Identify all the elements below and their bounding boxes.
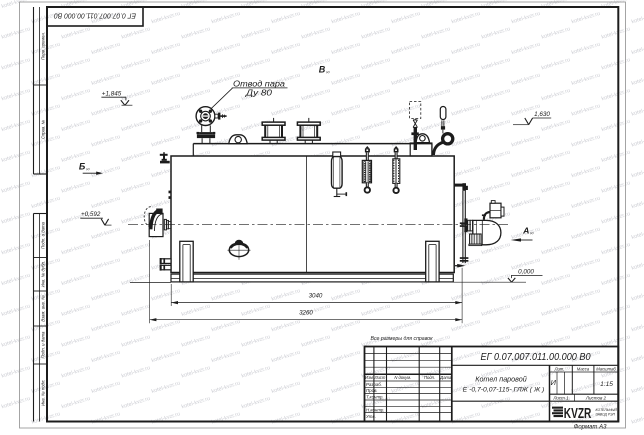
- svg-text:kotel-kvzr.ru: kotel-kvzr.ru: [541, 26, 571, 40]
- svg-text:kotel-kvzr.ru: kotel-kvzr.ru: [151, 411, 181, 425]
- svg-text:kotel-kvzr.ru: kotel-kvzr.ru: [421, 119, 451, 133]
- svg-text:(2): (2): [530, 231, 534, 235]
- svg-text:kotel-kvzr.ru: kotel-kvzr.ru: [121, 365, 151, 379]
- svg-text:kotel-kvzr.ru: kotel-kvzr.ru: [391, 11, 421, 25]
- svg-text:Лит.: Лит.: [554, 367, 565, 372]
- svg-text:kotel-kvzr.ru: kotel-kvzr.ru: [391, 411, 421, 425]
- svg-text:Взам. инв. №: Взам. инв. №: [40, 295, 45, 322]
- svg-text:ЕГ 0.07.007.011.00.000 В0: ЕГ 0.07.007.011.00.000 В0: [481, 352, 592, 363]
- svg-text:kotel-kvzr.ru: kotel-kvzr.ru: [511, 42, 541, 56]
- svg-text:Лист 1: Лист 1: [552, 396, 569, 401]
- svg-text:kotel-kvzr.ru: kotel-kvzr.ru: [151, 381, 181, 395]
- svg-text:kotel-kvzr.ru: kotel-kvzr.ru: [61, 0, 91, 10]
- svg-text:kotel-kvzr.ru: kotel-kvzr.ru: [211, 350, 241, 364]
- svg-text:+0,592: +0,592: [81, 211, 101, 218]
- svg-text:kotel-kvzr.ru: kotel-kvzr.ru: [1, 273, 31, 287]
- svg-text:Инв. № подл.: Инв. № подл.: [40, 379, 45, 406]
- svg-text:kotel-kvzr.ru: kotel-kvzr.ru: [1, 88, 31, 102]
- svg-text:kotel-kvzr.ru: kotel-kvzr.ru: [211, 288, 241, 302]
- svg-text:kotel-kvzr.ru: kotel-kvzr.ru: [331, 319, 361, 333]
- svg-text:(2): (2): [86, 167, 90, 171]
- svg-text:Отвод пара: Отвод пара: [233, 80, 285, 89]
- svg-text:kotel-kvzr.ru: kotel-kvzr.ru: [151, 134, 181, 148]
- svg-text:kotel-kvzr.ru: kotel-kvzr.ru: [31, 196, 61, 210]
- svg-text:kotel-kvzr.ru: kotel-kvzr.ru: [181, 0, 211, 10]
- svg-text:kotel-kvzr.ru: kotel-kvzr.ru: [361, 119, 391, 133]
- svg-text:kotel-kvzr.ru: kotel-kvzr.ru: [541, 304, 571, 318]
- svg-text:kotel-kvzr.ru: kotel-kvzr.ru: [151, 350, 181, 364]
- svg-text:kotel-kvzr.ru: kotel-kvzr.ru: [91, 103, 121, 117]
- svg-text:kotel-kvzr.ru: kotel-kvzr.ru: [241, 304, 271, 318]
- svg-text:kotel-kvzr.ru: kotel-kvzr.ru: [301, 88, 331, 102]
- svg-text:kotel-kvzr.ru: kotel-kvzr.ru: [331, 381, 361, 395]
- svg-text:3260: 3260: [299, 309, 313, 316]
- svg-text:kotel-kvzr.ru: kotel-kvzr.ru: [241, 365, 271, 379]
- svg-text:kotel-kvzr.ru: kotel-kvzr.ru: [1, 150, 31, 164]
- svg-text:kotel-kvzr.ru: kotel-kvzr.ru: [121, 180, 151, 194]
- svg-text:kotel-kvzr.ru: kotel-kvzr.ru: [1, 304, 31, 318]
- svg-text:kotel-kvzr.ru: kotel-kvzr.ru: [121, 334, 151, 348]
- svg-text:kotel-kvzr.ru: kotel-kvzr.ru: [481, 150, 511, 164]
- svg-text:kotel-kvzr.ru: kotel-kvzr.ru: [481, 0, 511, 10]
- svg-text:kotel-kvzr.ru: kotel-kvzr.ru: [391, 319, 421, 333]
- svg-text:kotel-kvzr.ru: kotel-kvzr.ru: [481, 57, 511, 71]
- svg-text:kotel-kvzr.ru: kotel-kvzr.ru: [541, 0, 571, 10]
- svg-text:kotel-kvzr.ru: kotel-kvzr.ru: [181, 26, 211, 40]
- svg-text:kotel-kvzr.ru: kotel-kvzr.ru: [31, 165, 61, 179]
- svg-text:kotel-kvzr.ru: kotel-kvzr.ru: [421, 396, 451, 410]
- svg-text:kotel-kvzr.ru: kotel-kvzr.ru: [331, 42, 361, 56]
- svg-text:kotel-kvzr.ru: kotel-kvzr.ru: [391, 381, 421, 395]
- svg-text:kotel-kvzr.ru: kotel-kvzr.ru: [31, 42, 61, 56]
- svg-text:kotel-kvzr.ru: kotel-kvzr.ru: [1, 180, 31, 194]
- svg-text:kotel-kvzr.ru: kotel-kvzr.ru: [511, 411, 541, 425]
- svg-text:kotel-kvzr.ru: kotel-kvzr.ru: [541, 119, 571, 133]
- svg-text:kotel-kvzr.ru: kotel-kvzr.ru: [1, 365, 31, 379]
- svg-text:kotel-kvzr.ru: kotel-kvzr.ru: [571, 196, 601, 210]
- svg-text:kotel-kvzr.ru: kotel-kvzr.ru: [391, 42, 421, 56]
- svg-text:kotel-kvzr.ru: kotel-kvzr.ru: [331, 103, 361, 117]
- svg-text:КОТЕЛЬНЫЙ: КОТЕЛЬНЫЙ: [596, 408, 618, 412]
- svg-text:Утв.: Утв.: [366, 414, 376, 419]
- svg-text:kotel-kvzr.ru: kotel-kvzr.ru: [271, 350, 301, 364]
- svg-text:kotel-kvzr.ru: kotel-kvzr.ru: [571, 227, 601, 241]
- svg-text:Масса: Масса: [577, 367, 590, 372]
- svg-text:ЗАВОД РЭП: ЗАВОД РЭП: [596, 413, 616, 417]
- svg-text:kotel-kvzr.ru: kotel-kvzr.ru: [511, 319, 541, 333]
- svg-text:kotel-kvzr.ru: kotel-kvzr.ru: [451, 134, 481, 148]
- svg-text:kotel-kvzr.ru: kotel-kvzr.ru: [631, 411, 644, 425]
- svg-text:kotel-kvzr.ru: kotel-kvzr.ru: [451, 350, 481, 364]
- svg-text:kotel-kvzr.ru: kotel-kvzr.ru: [631, 11, 644, 25]
- svg-text:kotel-kvzr.ru: kotel-kvzr.ru: [91, 73, 121, 87]
- svg-text:kotel-kvzr.ru: kotel-kvzr.ru: [331, 288, 361, 302]
- svg-text:1:15: 1:15: [600, 381, 613, 388]
- svg-text:kotel-kvzr.ru: kotel-kvzr.ru: [631, 103, 644, 117]
- svg-text:kotel-kvzr.ru: kotel-kvzr.ru: [361, 304, 391, 318]
- svg-text:kotel-kvzr.ru: kotel-kvzr.ru: [541, 180, 571, 194]
- svg-text:kotel-kvzr.ru: kotel-kvzr.ru: [361, 88, 391, 102]
- svg-text:kotel-kvzr.ru: kotel-kvzr.ru: [121, 304, 151, 318]
- svg-text:kotel-kvzr.ru: kotel-kvzr.ru: [361, 57, 391, 71]
- svg-text:kotel-kvzr.ru: kotel-kvzr.ru: [301, 26, 331, 40]
- svg-text:kotel-kvzr.ru: kotel-kvzr.ru: [601, 150, 631, 164]
- svg-text:KVZR: KVZR: [564, 406, 592, 422]
- svg-text:kotel-kvzr.ru: kotel-kvzr.ru: [451, 73, 481, 87]
- svg-text:Справ. №: Справ. №: [40, 120, 45, 139]
- svg-text:kotel-kvzr.ru: kotel-kvzr.ru: [1, 334, 31, 348]
- svg-text:kotel-kvzr.ru: kotel-kvzr.ru: [331, 411, 361, 425]
- svg-text:kotel-kvzr.ru: kotel-kvzr.ru: [211, 319, 241, 333]
- svg-text:kotel-kvzr.ru: kotel-kvzr.ru: [211, 11, 241, 25]
- svg-text:kotel-kvzr.ru: kotel-kvzr.ru: [241, 0, 271, 10]
- svg-text:kotel-kvzr.ru: kotel-kvzr.ru: [61, 180, 91, 194]
- svg-text:kotel-kvzr.ru: kotel-kvzr.ru: [271, 42, 301, 56]
- svg-text:kotel-kvzr.ru: kotel-kvzr.ru: [601, 304, 631, 318]
- svg-text:Подп. и дата: Подп. и дата: [40, 331, 45, 359]
- svg-text:kotel-kvzr.ru: kotel-kvzr.ru: [121, 0, 151, 10]
- svg-text:kotel-kvzr.ru: kotel-kvzr.ru: [91, 257, 121, 271]
- svg-text:kotel-kvzr.ru: kotel-kvzr.ru: [91, 134, 121, 148]
- svg-text:kotel-kvzr.ru: kotel-kvzr.ru: [301, 365, 331, 379]
- svg-text:kotel-kvzr.ru: kotel-kvzr.ru: [31, 288, 61, 302]
- svg-text:(2): (2): [326, 70, 330, 74]
- svg-text:kotel-kvzr.ru: kotel-kvzr.ru: [151, 11, 181, 25]
- svg-text:kotel-kvzr.ru: kotel-kvzr.ru: [1, 26, 31, 40]
- svg-text:kotel-kvzr.ru: kotel-kvzr.ru: [601, 119, 631, 133]
- svg-text:kotel-kvzr.ru: kotel-kvzr.ru: [121, 211, 151, 225]
- svg-text:kotel-kvzr.ru: kotel-kvzr.ru: [181, 396, 211, 410]
- svg-text:kotel-kvzr.ru: kotel-kvzr.ru: [421, 0, 451, 10]
- svg-text:kotel-kvzr.ru: kotel-kvzr.ru: [541, 273, 571, 287]
- svg-text:kotel-kvzr.ru: kotel-kvzr.ru: [601, 0, 631, 10]
- svg-text:Т.контр.: Т.контр.: [366, 395, 384, 400]
- svg-text:kotel-kvzr.ru: kotel-kvzr.ru: [631, 350, 644, 364]
- svg-text:kotel-kvzr.ru: kotel-kvzr.ru: [121, 57, 151, 71]
- svg-text:kotel-kvzr.ru: kotel-kvzr.ru: [541, 211, 571, 225]
- svg-text:kotel-kvzr.ru: kotel-kvzr.ru: [151, 73, 181, 87]
- svg-text:kotel-kvzr.ru: kotel-kvzr.ru: [511, 134, 541, 148]
- svg-text:kotel-kvzr.ru: kotel-kvzr.ru: [61, 396, 91, 410]
- svg-text:В: В: [319, 65, 326, 75]
- svg-text:kotel-kvzr.ru: kotel-kvzr.ru: [331, 134, 361, 148]
- svg-text:kotel-kvzr.ru: kotel-kvzr.ru: [61, 304, 91, 318]
- svg-text:Е -0,7-0,07-115- ГЛЖ ( Ж ): Е -0,7-0,07-115- ГЛЖ ( Ж ): [463, 387, 545, 394]
- svg-text:kotel-kvzr.ru: kotel-kvzr.ru: [271, 288, 301, 302]
- svg-text:kotel-kvzr.ru: kotel-kvzr.ru: [91, 42, 121, 56]
- svg-text:Пров.: Пров.: [366, 388, 378, 393]
- svg-text:kotel-kvzr.ru: kotel-kvzr.ru: [391, 350, 421, 364]
- svg-text:kotel-kvzr.ru: kotel-kvzr.ru: [421, 26, 451, 40]
- svg-text:kotel-kvzr.ru: kotel-kvzr.ru: [601, 242, 631, 256]
- svg-text:kotel-kvzr.ru: kotel-kvzr.ru: [601, 211, 631, 225]
- svg-text:А: А: [522, 226, 529, 236]
- svg-text:kotel-kvzr.ru: kotel-kvzr.ru: [631, 134, 644, 148]
- svg-text:kotel-kvzr.ru: kotel-kvzr.ru: [271, 411, 301, 425]
- svg-text:kotel-kvzr.ru: kotel-kvzr.ru: [511, 288, 541, 302]
- svg-text:kotel-kvzr.ru: kotel-kvzr.ru: [361, 26, 391, 40]
- svg-text:kotel-kvzr.ru: kotel-kvzr.ru: [211, 42, 241, 56]
- svg-text:kotel-kvzr.ru: kotel-kvzr.ru: [451, 257, 481, 271]
- svg-text:kotel-kvzr.ru: kotel-kvzr.ru: [331, 11, 361, 25]
- svg-text:kotel-kvzr.ru: kotel-kvzr.ru: [271, 381, 301, 395]
- svg-text:kotel-kvzr.ru: kotel-kvzr.ru: [481, 119, 511, 133]
- svg-text:kotel-kvzr.ru: kotel-kvzr.ru: [571, 42, 601, 56]
- svg-text:kotel-kvzr.ru: kotel-kvzr.ru: [151, 288, 181, 302]
- svg-text:kotel-kvzr.ru: kotel-kvzr.ru: [421, 304, 451, 318]
- svg-text:Перв. примен.: Перв. примен.: [40, 32, 45, 60]
- svg-text:kotel-kvzr.ru: kotel-kvzr.ru: [571, 257, 601, 271]
- svg-text:kotel-kvzr.ru: kotel-kvzr.ru: [91, 350, 121, 364]
- svg-text:kotel-kvzr.ru: kotel-kvzr.ru: [121, 396, 151, 410]
- svg-text:kotel-kvzr.ru: kotel-kvzr.ru: [271, 319, 301, 333]
- svg-text:kotel-kvzr.ru: kotel-kvzr.ru: [61, 150, 91, 164]
- svg-text:kotel-kvzr.ru: kotel-kvzr.ru: [61, 273, 91, 287]
- svg-text:kotel-kvzr.ru: kotel-kvzr.ru: [571, 103, 601, 117]
- svg-text:kotel-kvzr.ru: kotel-kvzr.ru: [631, 165, 644, 179]
- svg-text:kotel-kvzr.ru: kotel-kvzr.ru: [91, 381, 121, 395]
- svg-text:kotel-kvzr.ru: kotel-kvzr.ru: [121, 150, 151, 164]
- svg-text:kotel-kvzr.ru: kotel-kvzr.ru: [541, 150, 571, 164]
- svg-text:kotel-kvzr.ru: kotel-kvzr.ru: [511, 73, 541, 87]
- svg-text:kotel-kvzr.ru: kotel-kvzr.ru: [271, 134, 301, 148]
- svg-text:kotel-kvzr.ru: kotel-kvzr.ru: [481, 304, 511, 318]
- svg-text:kotel-kvzr.ru: kotel-kvzr.ru: [91, 319, 121, 333]
- svg-text:kotel-kvzr.ru: kotel-kvzr.ru: [571, 11, 601, 25]
- svg-text:0,000: 0,000: [518, 268, 534, 275]
- svg-text:kotel-kvzr.ru: kotel-kvzr.ru: [451, 196, 481, 210]
- svg-text:kotel-kvzr.ru: kotel-kvzr.ru: [91, 165, 121, 179]
- svg-text:kotel-kvzr.ru: kotel-kvzr.ru: [631, 227, 644, 241]
- svg-text:kotel-kvzr.ru: kotel-kvzr.ru: [1, 57, 31, 71]
- svg-text:kotel-kvzr.ru: kotel-kvzr.ru: [1, 396, 31, 410]
- svg-text:kotel-kvzr.ru: kotel-kvzr.ru: [181, 88, 211, 102]
- svg-text:kotel-kvzr.ru: kotel-kvzr.ru: [61, 26, 91, 40]
- svg-text:Б: Б: [79, 161, 86, 171]
- svg-text:Листов 2: Листов 2: [585, 396, 607, 401]
- svg-text:kotel-kvzr.ru: kotel-kvzr.ru: [571, 165, 601, 179]
- svg-text:Формат А3: Формат А3: [574, 424, 607, 430]
- svg-text:Подп.: Подп.: [424, 375, 435, 380]
- svg-text:kotel-kvzr.ru: kotel-kvzr.ru: [601, 180, 631, 194]
- svg-text:kotel-kvzr.ru: kotel-kvzr.ru: [331, 73, 361, 87]
- svg-text:kotel-kvzr.ru: kotel-kvzr.ru: [451, 288, 481, 302]
- svg-text:И: И: [551, 378, 557, 387]
- svg-text:Изм: Изм: [365, 375, 373, 380]
- svg-text:kotel-kvzr.ru: kotel-kvzr.ru: [1, 242, 31, 256]
- svg-text:ЕГ 0.07.007.011.00.000 В0: ЕГ 0.07.007.011.00.000 В0: [54, 12, 136, 21]
- svg-text:kotel-kvzr.ru: kotel-kvzr.ru: [601, 57, 631, 71]
- svg-text:kotel-kvzr.ru: kotel-kvzr.ru: [271, 11, 301, 25]
- svg-text:kotel-kvzr.ru: kotel-kvzr.ru: [631, 196, 644, 210]
- svg-text:kotel-kvzr.ru: kotel-kvzr.ru: [1, 119, 31, 133]
- svg-text:kotel-kvzr.ru: kotel-kvzr.ru: [481, 180, 511, 194]
- svg-text:kotel-kvzr.ru: kotel-kvzr.ru: [451, 11, 481, 25]
- svg-text:3040: 3040: [309, 293, 323, 300]
- svg-text:kotel-kvzr.ru: kotel-kvzr.ru: [631, 381, 644, 395]
- svg-text:kotel-kvzr.ru: kotel-kvzr.ru: [181, 334, 211, 348]
- svg-text:Дата: Дата: [439, 375, 452, 380]
- svg-text:kotel-kvzr.ru: kotel-kvzr.ru: [451, 411, 481, 425]
- svg-text:kotel-kvzr.ru: kotel-kvzr.ru: [121, 273, 151, 287]
- svg-text:kotel-kvzr.ru: kotel-kvzr.ru: [601, 273, 631, 287]
- svg-text:kotel-kvzr.ru: kotel-kvzr.ru: [1, 0, 31, 10]
- svg-text:kotel-kvzr.ru: kotel-kvzr.ru: [181, 304, 211, 318]
- svg-text:1,630: 1,630: [534, 111, 550, 118]
- svg-text:kotel-kvzr.ru: kotel-kvzr.ru: [481, 396, 511, 410]
- svg-text:kotel-kvzr.ru: kotel-kvzr.ru: [31, 381, 61, 395]
- svg-text:+1,845: +1,845: [102, 90, 122, 97]
- svg-text:kotel-kvzr.ru: kotel-kvzr.ru: [631, 257, 644, 271]
- svg-text:kotel-kvzr.ru: kotel-kvzr.ru: [61, 365, 91, 379]
- svg-text:kotel-kvzr.ru: kotel-kvzr.ru: [241, 26, 271, 40]
- svg-text:kotel-kvzr.ru: kotel-kvzr.ru: [361, 0, 391, 10]
- svg-text:kotel-kvzr.ru: kotel-kvzr.ru: [331, 350, 361, 364]
- svg-text:kotel-kvzr.ru: kotel-kvzr.ru: [31, 103, 61, 117]
- svg-text:Все размеры для справок: Все размеры для справок: [371, 336, 434, 342]
- svg-text:kotel-kvzr.ru: kotel-kvzr.ru: [511, 165, 541, 179]
- svg-text:kotel-kvzr.ru: kotel-kvzr.ru: [631, 319, 644, 333]
- svg-text:kotel-kvzr.ru: kotel-kvzr.ru: [61, 57, 91, 71]
- svg-text:kotel-kvzr.ru: kotel-kvzr.ru: [421, 88, 451, 102]
- svg-text:Масштаб: Масштаб: [596, 367, 616, 372]
- svg-text:Ду 80: Ду 80: [245, 89, 273, 98]
- svg-text:kotel-kvzr.ru: kotel-kvzr.ru: [31, 134, 61, 148]
- svg-text:kotel-kvzr.ru: kotel-kvzr.ru: [571, 288, 601, 302]
- svg-text:kotel-kvzr.ru: kotel-kvzr.ru: [571, 381, 601, 395]
- svg-text:kotel-kvzr.ru: kotel-kvzr.ru: [181, 57, 211, 71]
- svg-text:kotel-kvzr.ru: kotel-kvzr.ru: [631, 73, 644, 87]
- svg-text:kotel-kvzr.ru: kotel-kvzr.ru: [31, 350, 61, 364]
- svg-text:Лист: Лист: [374, 375, 386, 380]
- svg-text:kotel-kvzr.ru: kotel-kvzr.ru: [151, 103, 181, 117]
- svg-text:kotel-kvzr.ru: kotel-kvzr.ru: [571, 319, 601, 333]
- svg-text:kotel-kvzr.ru: kotel-kvzr.ru: [481, 88, 511, 102]
- svg-text:kotel-kvzr.ru: kotel-kvzr.ru: [541, 242, 571, 256]
- svg-text:kotel-kvzr.ru: kotel-kvzr.ru: [61, 119, 91, 133]
- svg-text:kotel-kvzr.ru: kotel-kvzr.ru: [451, 42, 481, 56]
- svg-text:kotel-kvzr.ru: kotel-kvzr.ru: [121, 26, 151, 40]
- svg-text:kotel-kvzr.ru: kotel-kvzr.ru: [451, 165, 481, 179]
- svg-text:kotel-kvzr.ru: kotel-kvzr.ru: [601, 88, 631, 102]
- svg-text:kotel-kvzr.ru: kotel-kvzr.ru: [391, 288, 421, 302]
- svg-text:kotel-kvzr.ru: kotel-kvzr.ru: [61, 242, 91, 256]
- svg-text:kotel-kvzr.ru: kotel-kvzr.ru: [211, 411, 241, 425]
- svg-text:kotel-kvzr.ru: kotel-kvzr.ru: [511, 196, 541, 210]
- svg-text:kotel-kvzr.ru: kotel-kvzr.ru: [631, 288, 644, 302]
- svg-text:Котел паровой: Котел паровой: [475, 374, 527, 383]
- svg-text:kotel-kvzr.ru: kotel-kvzr.ru: [571, 73, 601, 87]
- svg-text:kotel-kvzr.ru: kotel-kvzr.ru: [121, 88, 151, 102]
- svg-text:kotel-kvzr.ru: kotel-kvzr.ru: [91, 288, 121, 302]
- svg-text:kotel-kvzr.ru: kotel-kvzr.ru: [91, 411, 121, 425]
- svg-text:kotel-kvzr.ru: kotel-kvzr.ru: [301, 0, 331, 10]
- svg-text:Разраб.: Разраб.: [366, 382, 382, 387]
- svg-text:kotel-kvzr.ru: kotel-kvzr.ru: [91, 227, 121, 241]
- svg-text:kotel-kvzr.ru: kotel-kvzr.ru: [481, 273, 511, 287]
- svg-text:kotel-kvzr.ru: kotel-kvzr.ru: [61, 88, 91, 102]
- svg-text:kotel-kvzr.ru: kotel-kvzr.ru: [391, 73, 421, 87]
- svg-text:kotel-kvzr.ru: kotel-kvzr.ru: [121, 242, 151, 256]
- svg-text:kotel-kvzr.ru: kotel-kvzr.ru: [571, 134, 601, 148]
- svg-text:kotel-kvzr.ru: kotel-kvzr.ru: [181, 365, 211, 379]
- svg-text:kotel-kvzr.ru: kotel-kvzr.ru: [241, 57, 271, 71]
- svg-text:kotel-kvzr.ru: kotel-kvzr.ru: [211, 381, 241, 395]
- svg-text:Н.контр.: Н.контр.: [366, 408, 385, 413]
- svg-text:kotel-kvzr.ru: kotel-kvzr.ru: [541, 57, 571, 71]
- svg-text:Инв. № дубл.: Инв. № дубл.: [40, 261, 45, 287]
- svg-text:kotel-kvzr.ru: kotel-kvzr.ru: [541, 88, 571, 102]
- svg-text:kotel-kvzr.ru: kotel-kvzr.ru: [241, 334, 271, 348]
- svg-text:kotel-kvzr.ru: kotel-kvzr.ru: [451, 103, 481, 117]
- svg-text:kotel-kvzr.ru: kotel-kvzr.ru: [31, 257, 61, 271]
- svg-text:kotel-kvzr.ru: kotel-kvzr.ru: [91, 196, 121, 210]
- svg-text:kotel-kvzr.ru: kotel-kvzr.ru: [631, 42, 644, 56]
- svg-text:kotel-kvzr.ru: kotel-kvzr.ru: [31, 411, 61, 425]
- svg-text:N докум.: N докум.: [394, 375, 411, 380]
- svg-text:kotel-kvzr.ru: kotel-kvzr.ru: [421, 57, 451, 71]
- svg-text:kotel-kvzr.ru: kotel-kvzr.ru: [511, 11, 541, 25]
- svg-text:kotel-kvzr.ru: kotel-kvzr.ru: [151, 42, 181, 56]
- svg-text:kotel-kvzr.ru: kotel-kvzr.ru: [301, 334, 331, 348]
- svg-text:kotel-kvzr.ru: kotel-kvzr.ru: [151, 319, 181, 333]
- svg-text:kotel-kvzr.ru: kotel-kvzr.ru: [271, 103, 301, 117]
- svg-text:kotel-kvzr.ru: kotel-kvzr.ru: [301, 396, 331, 410]
- svg-text:kotel-kvzr.ru: kotel-kvzr.ru: [601, 26, 631, 40]
- svg-text:kotel-kvzr.ru: kotel-kvzr.ru: [61, 334, 91, 348]
- svg-text:Подп. и дата: Подп. и дата: [40, 221, 45, 249]
- svg-text:kotel-kvzr.ru: kotel-kvzr.ru: [241, 396, 271, 410]
- svg-text:kotel-kvzr.ru: kotel-kvzr.ru: [121, 119, 151, 133]
- svg-text:kotel-kvzr.ru: kotel-kvzr.ru: [481, 26, 511, 40]
- svg-text:kotel-kvzr.ru: kotel-kvzr.ru: [31, 227, 61, 241]
- svg-text:kotel-kvzr.ru: kotel-kvzr.ru: [1, 211, 31, 225]
- svg-text:kotel-kvzr.ru: kotel-kvzr.ru: [391, 103, 421, 117]
